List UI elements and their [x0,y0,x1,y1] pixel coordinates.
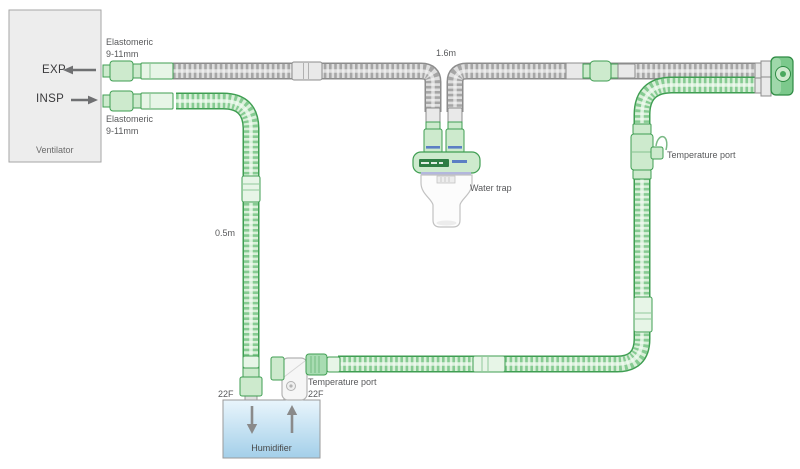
ventilator-box [9,10,101,162]
exp-elastomeric-connector [103,61,173,81]
exp-connector-label: Elastomeric 9-11mm [106,37,153,60]
expiratory-length-label: 1.6m [436,48,456,60]
circuit-graphics [0,0,800,469]
humidifier-inlet-size-label: 22F [218,389,234,401]
water-trap-label: Water trap [470,183,512,195]
ventilator-label: Ventilator [36,145,74,155]
insp-elastomeric-connector [103,91,173,111]
inspiratory-tube-to-humidifier [176,101,251,372]
water-trap [413,108,480,227]
humidifier-label: Humidifier [223,443,320,453]
humidifier-inlet-connector [240,368,262,396]
expiratory-swivel-connector [566,61,635,81]
inspiratory-length-label: 0.5m [215,228,235,240]
temperature-port-patient [631,124,667,179]
exp-port-label: EXP [42,64,66,76]
insp-connector-label: Elastomeric 9-11mm [106,114,153,137]
temperature-port-patient-label: Temperature port [667,150,736,162]
insp-port-label: INSP [36,93,64,105]
patient-wye [755,57,793,96]
breathing-circuit-diagram: EXP INSP Ventilator Elastomeric 9-11mm E… [0,0,800,469]
temperature-port-humidifier-label: Temperature port 22F [308,377,377,400]
inspiratory-tube-to-patient [338,85,756,364]
